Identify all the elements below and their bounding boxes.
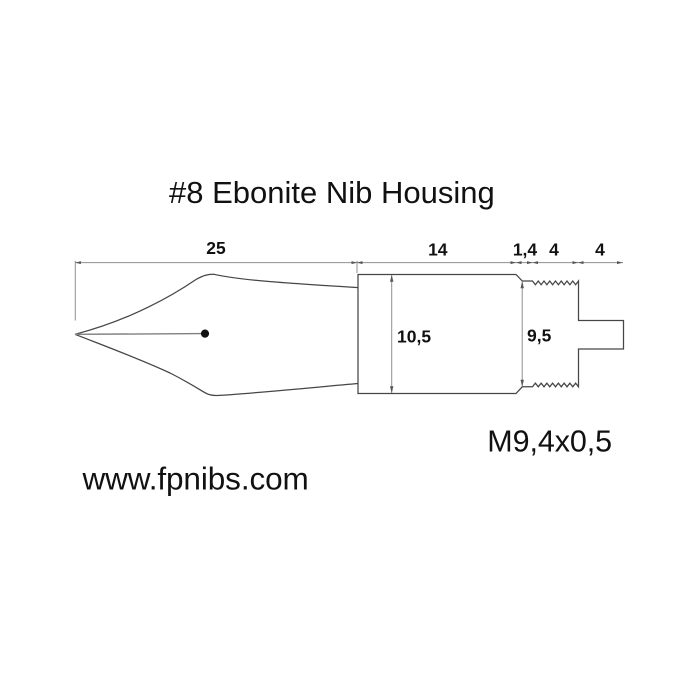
svg-text:4: 4 [595, 240, 605, 260]
svg-text:25: 25 [206, 238, 226, 258]
svg-text:14: 14 [428, 240, 448, 260]
svg-text:4: 4 [549, 240, 559, 260]
svg-text:www.fpnibs.com: www.fpnibs.com [82, 460, 309, 496]
svg-text:#8 Ebonite Nib Housing: #8 Ebonite Nib Housing [169, 175, 495, 210]
svg-text:M9,4x0,5: M9,4x0,5 [487, 425, 612, 459]
svg-text:1,4: 1,4 [513, 240, 538, 260]
svg-text:9,5: 9,5 [527, 326, 552, 346]
svg-text:10,5: 10,5 [397, 327, 431, 347]
